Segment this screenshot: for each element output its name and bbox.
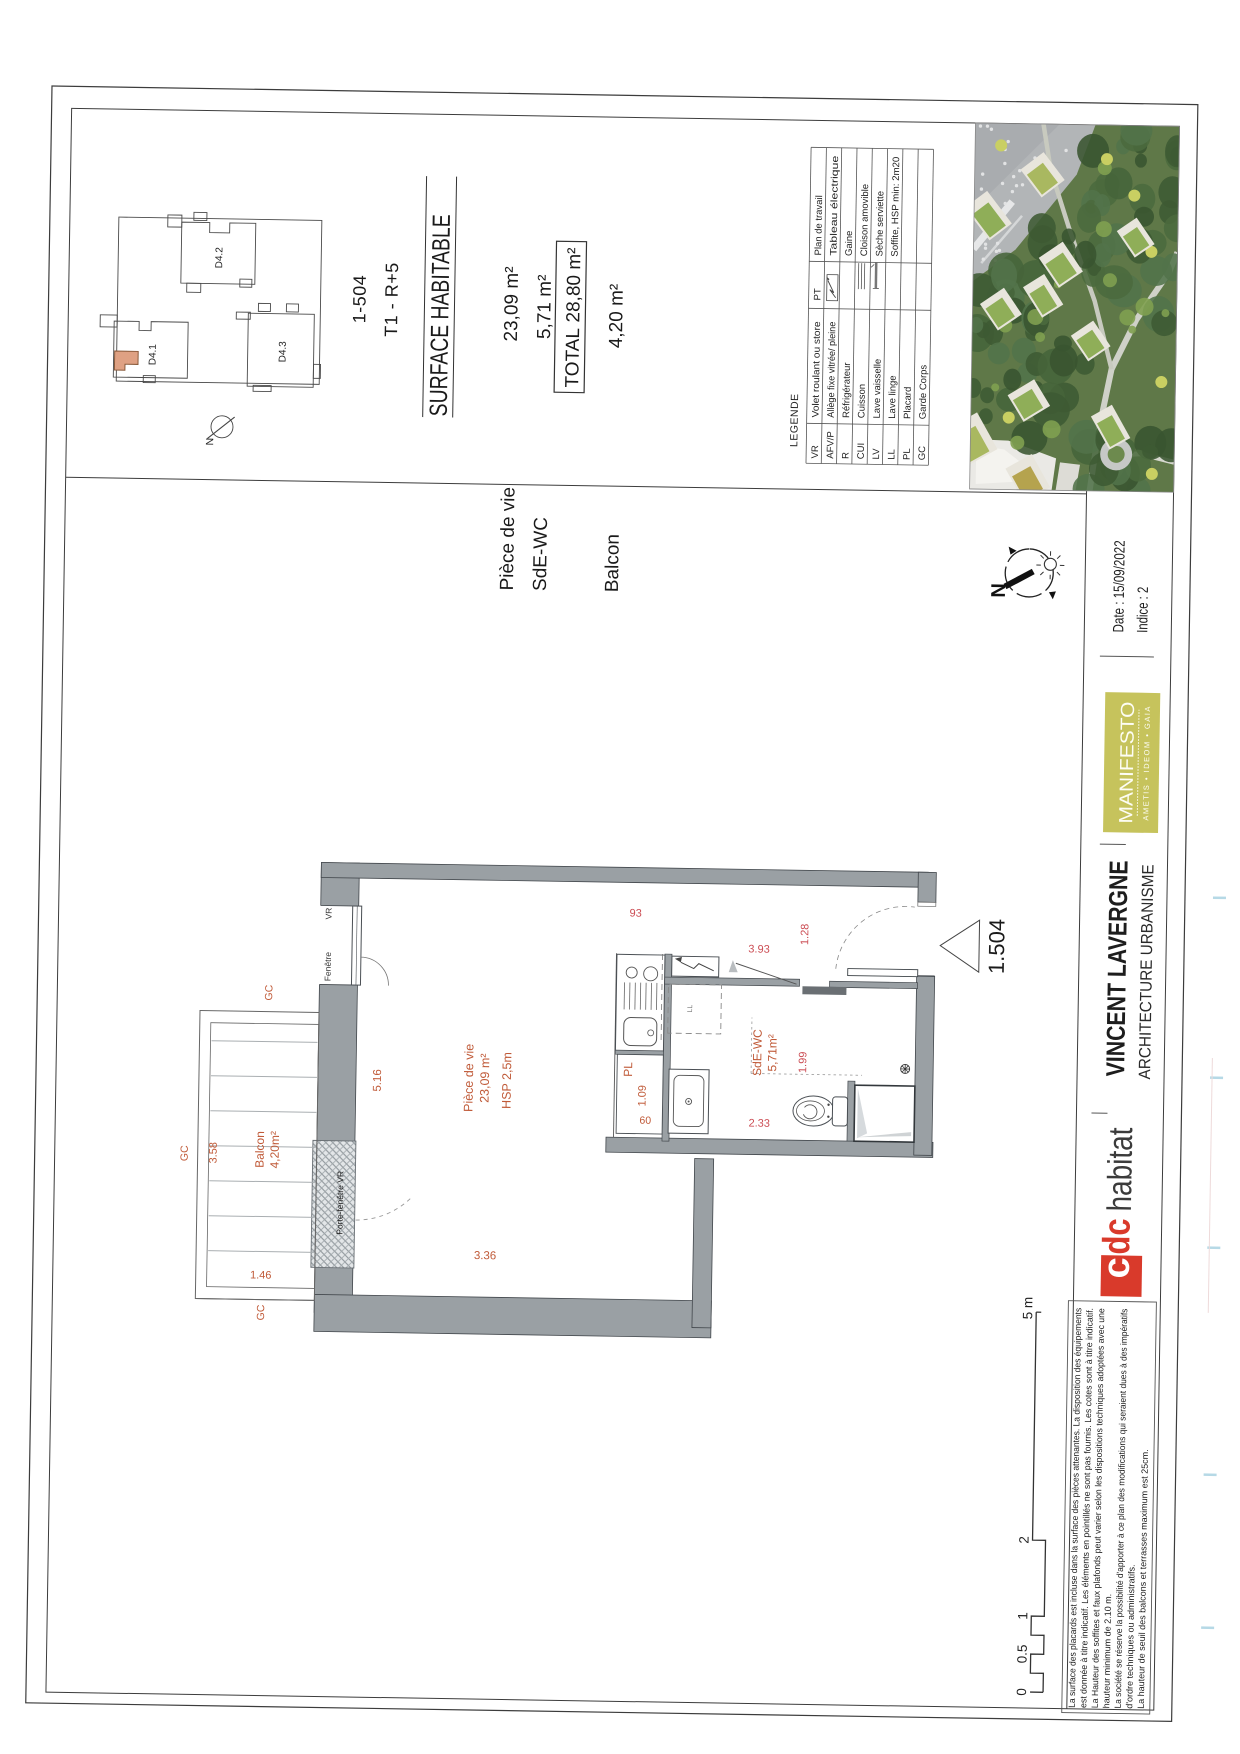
svg-text:D4.1: D4.1 xyxy=(147,344,158,366)
svg-text:5,71m²: 5,71m² xyxy=(765,1034,780,1072)
svg-text:Balcon: Balcon xyxy=(602,534,624,592)
svg-text:3.36: 3.36 xyxy=(474,1250,497,1262)
svg-text:Lave linge: Lave linge xyxy=(887,375,899,418)
svg-text:AFV/P: AFV/P xyxy=(825,431,836,459)
svg-text:2.33: 2.33 xyxy=(748,1117,770,1129)
svg-text:PL: PL xyxy=(621,1062,635,1077)
svg-text:T1 - R+5: T1 - R+5 xyxy=(381,262,402,337)
svg-text:dc: dc xyxy=(1096,1218,1139,1255)
svg-text:Tableau électrique: Tableau électrique xyxy=(828,156,841,256)
svg-text:D4.2: D4.2 xyxy=(214,247,225,269)
svg-text:LL: LL xyxy=(687,1005,694,1013)
svg-text:1.46: 1.46 xyxy=(250,1269,272,1281)
svg-text:1: 1 xyxy=(1015,1612,1030,1620)
svg-text:LL: LL xyxy=(886,449,897,460)
svg-text:PL: PL xyxy=(902,448,913,460)
svg-text:3.58: 3.58 xyxy=(208,1142,220,1164)
svg-text:Porte-fenêtre VR: Porte-fenêtre VR xyxy=(334,1171,345,1235)
svg-text:3.93: 3.93 xyxy=(748,943,770,955)
svg-text:Balcon: Balcon xyxy=(252,1131,267,1168)
svg-text:Fenêtre: Fenêtre xyxy=(323,952,333,982)
svg-text:N: N xyxy=(988,583,1010,598)
svg-text:4,20m²: 4,20m² xyxy=(267,1131,282,1169)
svg-text:5.16: 5.16 xyxy=(372,1069,384,1092)
svg-text:1.99: 1.99 xyxy=(797,1052,809,1074)
svg-text:GC: GC xyxy=(255,1304,267,1320)
svg-text:GC: GC xyxy=(263,984,275,1000)
svg-text:0.5: 0.5 xyxy=(1015,1644,1030,1663)
svg-text:23,09 m²: 23,09 m² xyxy=(478,1053,493,1103)
svg-text:SdE-WC: SdE-WC xyxy=(750,1029,765,1076)
svg-text:VR: VR xyxy=(324,908,334,920)
svg-text:GC: GC xyxy=(917,446,928,461)
svg-text:Indice : 2: Indice : 2 xyxy=(1134,587,1152,633)
svg-text:Lave vaisselle: Lave vaisselle xyxy=(872,359,884,419)
svg-text:habitat: habitat xyxy=(1101,1127,1140,1212)
svg-text:Pièce de vie: Pièce de vie xyxy=(461,1044,476,1112)
svg-text:Cuisson: Cuisson xyxy=(856,384,868,419)
svg-text:Placard: Placard xyxy=(902,387,914,419)
svg-text:Garde Corps: Garde Corps xyxy=(918,364,930,419)
svg-text:TOTAL: TOTAL xyxy=(562,328,584,388)
svg-text:Allège fixe vitrée/ pleine: Allège fixe vitrée/ pleine xyxy=(826,322,839,418)
svg-text:d'ordre techniques ou administ: d'ordre techniques ou administratifs. xyxy=(1124,1564,1136,1708)
svg-text:N: N xyxy=(204,438,216,446)
svg-text:60: 60 xyxy=(639,1115,651,1127)
svg-text:Cloison amovible: Cloison amovible xyxy=(859,184,871,257)
svg-text:1.09: 1.09 xyxy=(637,1085,649,1107)
svg-text:GC: GC xyxy=(179,1145,191,1161)
svg-text:VINCENT LAVERGNE: VINCENT LAVERGNE xyxy=(1100,860,1134,1076)
svg-text:Volet roulant ou store: Volet roulant ou store xyxy=(811,321,824,417)
svg-text:Gaine: Gaine xyxy=(844,231,855,257)
svg-text:MANIFESTO: MANIFESTO xyxy=(1116,701,1139,823)
svg-text:Plan de travail: Plan de travail xyxy=(813,195,825,255)
svg-text:CUI: CUI xyxy=(856,443,867,460)
svg-text:PT: PT xyxy=(812,288,823,301)
svg-text:1.28: 1.28 xyxy=(799,924,811,946)
svg-text:1-504: 1-504 xyxy=(349,275,370,324)
svg-text:VR: VR xyxy=(810,445,821,459)
svg-text:La hauteur de seuil des balcon: La hauteur de seuil des balcons et terra… xyxy=(1136,1449,1150,1709)
svg-text:LEGENDE: LEGENDE xyxy=(788,393,801,447)
svg-text:Réfrigérateur: Réfrigérateur xyxy=(841,362,853,418)
svg-text:2: 2 xyxy=(1016,1536,1031,1544)
svg-text:5 m: 5 m xyxy=(1020,1297,1035,1320)
svg-text:Soffite, HSP min: 2m20: Soffite, HSP min: 2m20 xyxy=(890,157,903,257)
svg-text:SURFACE HABITABLE: SURFACE HABITABLE xyxy=(425,214,456,416)
svg-text:5,71 m²: 5,71 m² xyxy=(534,274,556,339)
svg-text:SdE-WC: SdE-WC xyxy=(530,517,552,591)
svg-text:ARCHITECTURE URBANISME: ARCHITECTURE URBANISME xyxy=(1136,864,1157,1079)
svg-text:Pièce de vie: Pièce de vie xyxy=(497,487,520,591)
svg-text:23,09 m²: 23,09 m² xyxy=(501,266,523,341)
svg-text:LV: LV xyxy=(871,448,882,460)
svg-text:0: 0 xyxy=(1014,1688,1029,1696)
svg-text:hauteur minimum de 2.10 m.: hauteur minimum de 2.10 m. xyxy=(1101,1594,1113,1709)
svg-text:R: R xyxy=(840,452,851,459)
svg-text:Date : 15/09/2022: Date : 15/09/2022 xyxy=(1110,540,1128,632)
svg-text:c: c xyxy=(1096,1257,1138,1279)
svg-text:28,80 m²: 28,80 m² xyxy=(563,247,585,322)
svg-text:1.504: 1.504 xyxy=(984,919,1010,974)
svg-text:4,20 m²: 4,20 m² xyxy=(606,284,628,349)
svg-text:D4.3: D4.3 xyxy=(278,341,289,363)
svg-text:93: 93 xyxy=(629,907,641,919)
svg-text:HSP 2,5m: HSP 2,5m xyxy=(499,1052,514,1109)
svg-text:AMETIS • IDEOM • GAIA: AMETIS • IDEOM • GAIA xyxy=(1141,705,1152,821)
svg-text:Sèche serviette: Sèche serviette xyxy=(874,191,886,257)
